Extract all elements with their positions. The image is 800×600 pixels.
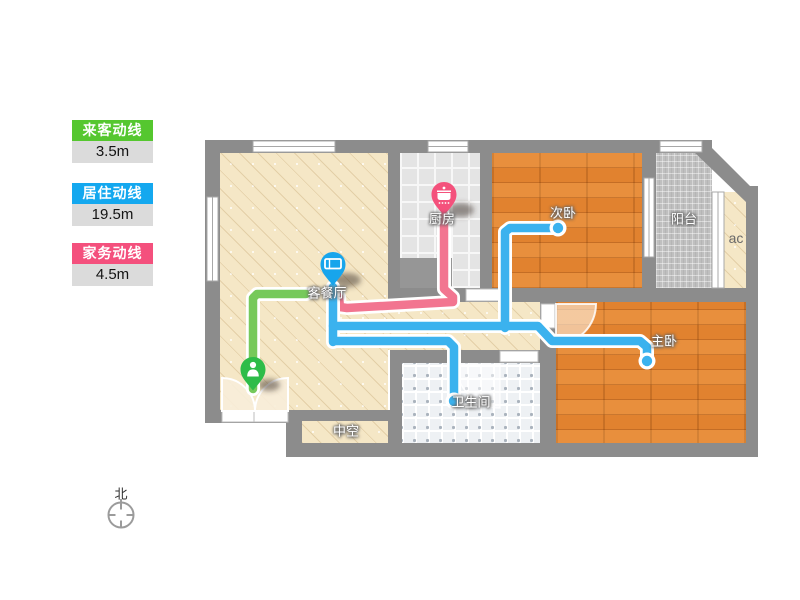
north-compass bbox=[109, 499, 134, 528]
label-secondary: 次卧 bbox=[550, 203, 576, 222]
route-endpoint-dot bbox=[553, 223, 563, 233]
door-kitchen-hall bbox=[466, 289, 502, 301]
plan-overlay bbox=[0, 0, 800, 600]
label-ac: ac bbox=[729, 230, 744, 246]
label-balcony: 阳台 bbox=[671, 209, 697, 228]
label-bathroom: 卫生间 bbox=[451, 392, 490, 411]
route-endpoint-dot bbox=[642, 356, 652, 366]
floorplan-page: 来客动线 3.5m 居住动线 19.5m 家务动线 4.5m bbox=[0, 0, 800, 600]
wall-bottom bbox=[286, 443, 758, 457]
wall-kitchen-left bbox=[388, 153, 400, 300]
wall-right bbox=[746, 186, 758, 457]
label-master: 主卧 bbox=[651, 331, 677, 350]
door-bathroom bbox=[500, 351, 538, 362]
wall-kitchen-right bbox=[480, 153, 492, 300]
label-void: 中空 bbox=[333, 421, 359, 440]
entry-pin-shadow bbox=[258, 379, 280, 391]
label-living: 客餐厅 bbox=[307, 283, 346, 302]
wall-void-top bbox=[286, 410, 402, 421]
label-north: 北 bbox=[114, 484, 127, 503]
label-kitchen: 厨房 bbox=[429, 209, 455, 228]
wall-bathroom-left bbox=[390, 350, 402, 445]
door-entrance bbox=[222, 411, 288, 422]
